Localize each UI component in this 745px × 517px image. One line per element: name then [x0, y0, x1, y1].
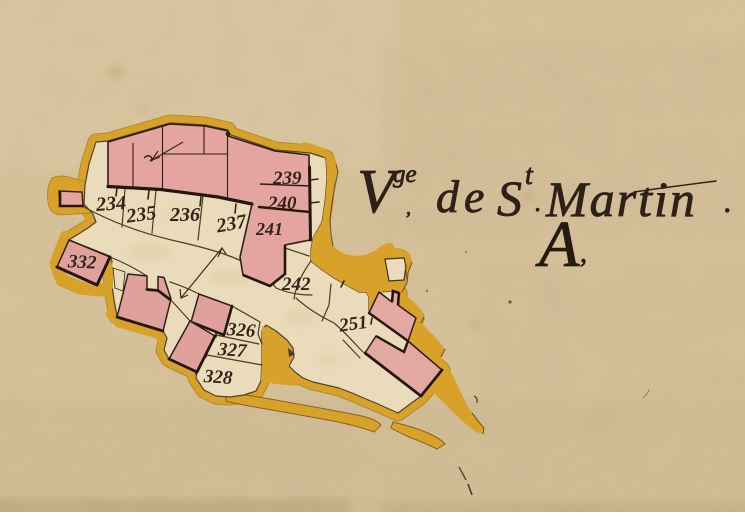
svg-text:de: de	[436, 171, 489, 222]
svg-text:236: 236	[169, 204, 200, 226]
svg-text:240: 240	[267, 193, 297, 214]
svg-text:ge: ge	[393, 161, 417, 188]
svg-text:328: 328	[202, 366, 233, 389]
svg-text:241: 241	[255, 219, 283, 239]
svg-text:235: 235	[124, 202, 158, 228]
svg-text:327: 327	[216, 339, 248, 362]
svg-text:326: 326	[225, 319, 256, 342]
svg-text:234: 234	[94, 192, 126, 216]
svg-text:,: ,	[406, 197, 411, 219]
svg-text:,: ,	[580, 238, 587, 269]
svg-text:S: S	[497, 170, 522, 226]
svg-text:242: 242	[281, 274, 311, 295]
svg-text:332: 332	[66, 251, 97, 274]
svg-text:t: t	[525, 160, 534, 191]
svg-text:A: A	[535, 208, 580, 281]
svg-text:239: 239	[272, 168, 302, 189]
svg-text:.: .	[724, 183, 732, 219]
svg-text:251: 251	[337, 312, 369, 337]
